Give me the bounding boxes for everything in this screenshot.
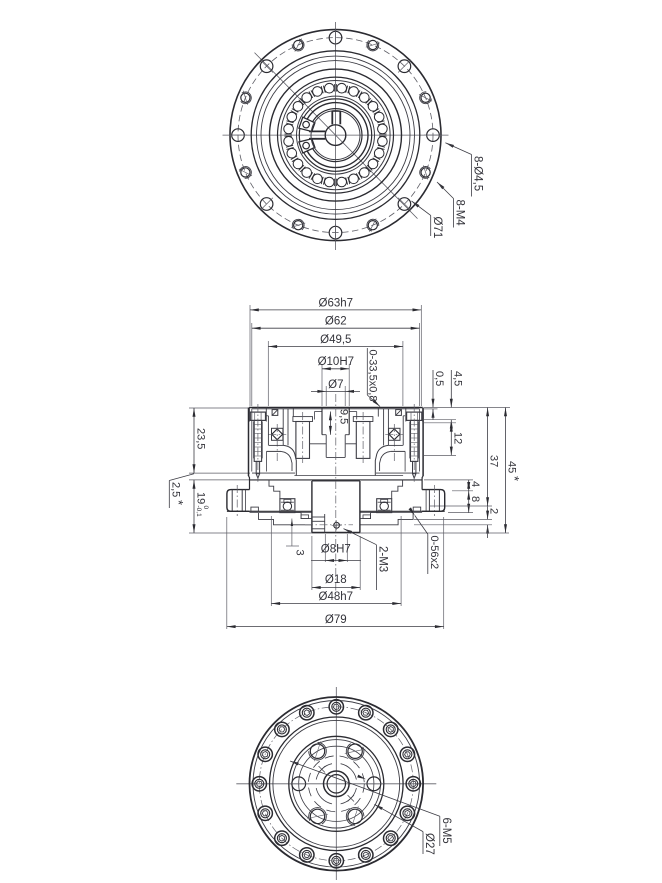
svg-text:Ø18: Ø18	[325, 574, 347, 586]
svg-text:Ø10H7: Ø10H7	[318, 356, 354, 368]
svg-text:Ø71: Ø71	[431, 217, 443, 239]
svg-text:Ø62: Ø62	[325, 316, 347, 328]
svg-text:8-Ø4,5: 8-Ø4,5	[472, 156, 484, 191]
svg-text:4,5: 4,5	[451, 371, 463, 386]
svg-text:4: 4	[469, 481, 481, 487]
svg-text:2: 2	[488, 508, 500, 514]
svg-text:0: 0	[202, 506, 209, 510]
svg-text:3: 3	[293, 550, 305, 556]
svg-text:12: 12	[451, 432, 463, 444]
svg-text:0,5: 0,5	[433, 371, 445, 386]
svg-text:23,5: 23,5	[194, 428, 206, 449]
svg-text:2-M3: 2-M3	[377, 546, 389, 572]
svg-text:Ø27: Ø27	[423, 833, 435, 855]
svg-text:0-56x2: 0-56x2	[428, 536, 440, 570]
svg-text:19: 19	[194, 492, 206, 504]
svg-text:Ø63h7: Ø63h7	[319, 297, 354, 309]
svg-text:9,5: 9,5	[338, 409, 350, 424]
svg-text:45: 45	[506, 461, 518, 473]
svg-text:Ø49,5: Ø49,5	[320, 334, 351, 346]
svg-text:8-M4: 8-M4	[454, 200, 466, 227]
svg-text:Ø48h7: Ø48h7	[319, 591, 354, 603]
svg-text:Ø7: Ø7	[328, 379, 343, 391]
svg-text:Ø79: Ø79	[325, 614, 347, 626]
svg-text:-0,1: -0,1	[195, 506, 202, 518]
svg-text:8: 8	[469, 496, 481, 502]
svg-text:*: *	[171, 500, 186, 505]
svg-text:6-M5: 6-M5	[440, 818, 452, 844]
svg-text:37: 37	[488, 455, 500, 467]
svg-text:2,5: 2,5	[169, 482, 181, 497]
svg-text:Ø8H7: Ø8H7	[321, 544, 351, 556]
svg-text:*: *	[507, 476, 522, 481]
svg-text:0-33,5x0,8: 0-33,5x0,8	[367, 350, 379, 402]
